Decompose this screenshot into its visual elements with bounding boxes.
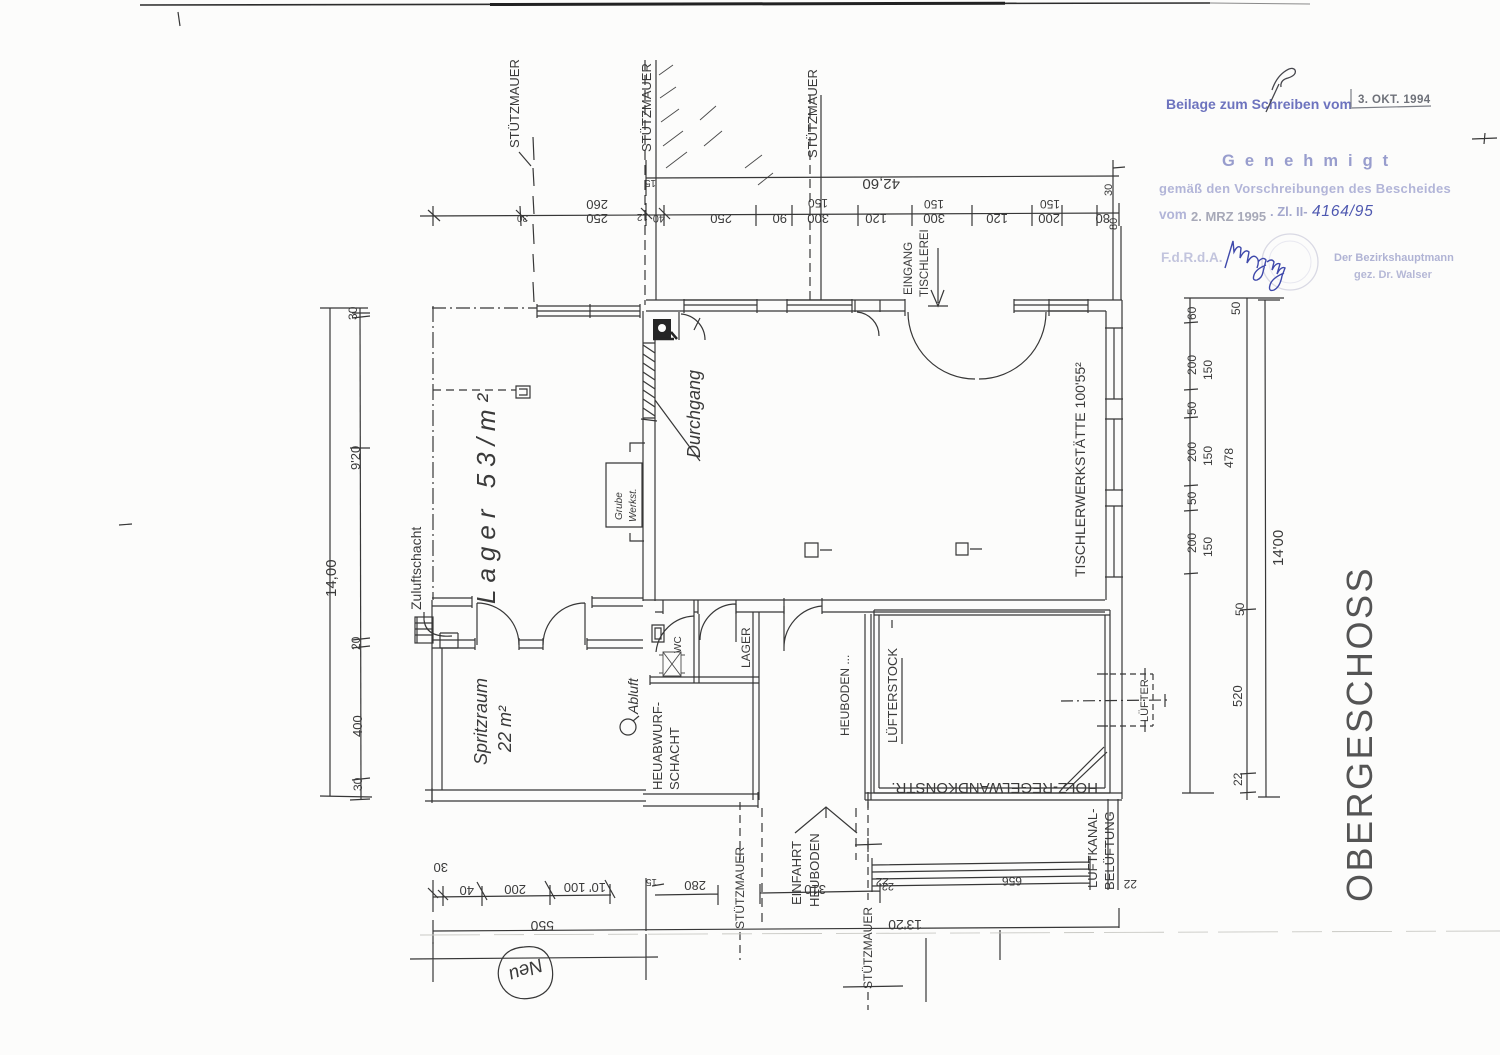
svg-text:200: 200 — [1038, 211, 1060, 226]
svg-text:LÜFTER: LÜFTER — [1139, 679, 1151, 722]
svg-text:30: 30 — [434, 860, 448, 875]
svg-text:EINFAHRT: EINFAHRT — [789, 841, 804, 905]
svg-text:Der Bezirkshauptmann: Der Bezirkshauptmann — [1334, 252, 1454, 264]
svg-text:280: 280 — [684, 878, 706, 893]
svg-text:BELÜFTUNG: BELÜFTUNG — [1102, 811, 1117, 890]
svg-text:478: 478 — [1222, 448, 1236, 468]
svg-text:Lager 53/m²: Lager 53/m² — [471, 387, 501, 604]
svg-text:150: 150 — [1040, 197, 1060, 211]
svg-text:HEUBODEN ...: HEUBODEN ... — [838, 655, 852, 736]
svg-text:50: 50 — [1185, 401, 1199, 415]
svg-text:LAGER: LAGER — [739, 627, 753, 668]
svg-text:2. MRZ 1995: 2. MRZ 1995 — [1191, 209, 1266, 224]
svg-text:150: 150 — [808, 196, 828, 210]
svg-text:22: 22 — [1231, 772, 1245, 786]
svg-text:Grube: Grube — [614, 492, 625, 520]
svg-text:STÜTZMAUER: STÜTZMAUER — [861, 907, 875, 989]
svg-text:520: 520 — [1230, 685, 1245, 707]
svg-text:15: 15 — [644, 177, 656, 188]
svg-text:Werkst.: Werkst. — [628, 488, 639, 522]
svg-text:22 m²: 22 m² — [495, 705, 515, 753]
svg-text:Beilage zum Schreiben vom: Beilage zum Schreiben vom — [1166, 96, 1352, 112]
svg-text:14,00: 14,00 — [323, 559, 340, 597]
svg-text:10' 100: 10' 100 — [564, 880, 606, 895]
svg-text:550: 550 — [530, 918, 554, 934]
svg-text:120: 120 — [986, 211, 1008, 226]
svg-text:310: 310 — [804, 882, 826, 897]
svg-text:300: 300 — [923, 211, 945, 226]
svg-text:656: 656 — [1002, 874, 1022, 888]
svg-text:HEUABWURF-: HEUABWURF- — [650, 702, 665, 790]
svg-text:50: 50 — [1233, 602, 1247, 616]
svg-text:EINGANG: EINGANG — [903, 242, 915, 295]
svg-text:. Zl. II-: . Zl. II- — [1270, 204, 1308, 219]
svg-text:80: 80 — [1108, 218, 1120, 230]
svg-text:50: 50 — [1185, 491, 1199, 505]
svg-text:30: 30 — [1103, 184, 1115, 196]
svg-text:12: 12 — [636, 211, 648, 222]
svg-text:SCHACHT: SCHACHT — [667, 727, 682, 790]
svg-text:150: 150 — [1201, 446, 1215, 466]
svg-text:200: 200 — [1185, 355, 1199, 375]
svg-text:250: 250 — [710, 211, 732, 226]
svg-text:260: 260 — [586, 197, 608, 212]
svg-text:150: 150 — [1201, 360, 1215, 380]
svg-text:OBERGESCHOSS: OBERGESCHOSS — [1339, 566, 1380, 902]
svg-text:HOLZ-REGELWANDKONSTR.: HOLZ-REGELWANDKONSTR. — [891, 779, 1098, 796]
svg-text:Spritzraum: Spritzraum — [471, 678, 491, 765]
svg-text:120: 120 — [865, 211, 887, 226]
svg-text:4164/95: 4164/95 — [1312, 203, 1374, 220]
svg-text:14'00: 14'00 — [1270, 530, 1287, 566]
svg-text:150: 150 — [1201, 537, 1215, 557]
svg-text:90: 90 — [773, 211, 787, 226]
svg-text:22: 22 — [882, 880, 894, 892]
svg-text:30: 30 — [351, 777, 365, 791]
svg-text:40: 40 — [653, 212, 665, 224]
svg-text:STÜTZMAUER: STÜTZMAUER — [507, 59, 522, 148]
svg-text:150: 150 — [924, 197, 944, 211]
svg-text:Genehmigt: Genehmigt — [1222, 152, 1398, 170]
svg-text:WC: WC — [673, 636, 684, 653]
svg-text:42,60: 42,60 — [862, 175, 900, 192]
svg-text:22: 22 — [1123, 877, 1137, 891]
svg-text:Durchgang: Durchgang — [684, 370, 704, 458]
svg-text:60: 60 — [1185, 306, 1199, 320]
svg-text:200: 200 — [1185, 442, 1199, 462]
svg-text:gez. Dr. Walser: gez. Dr. Walser — [1354, 269, 1433, 281]
svg-text:LÜFTERSTOCK: LÜFTERSTOCK — [885, 648, 900, 743]
svg-text:20: 20 — [349, 636, 363, 650]
svg-text:STÜTZMAUER: STÜTZMAUER — [805, 69, 820, 158]
svg-text:LUFTKANAL-: LUFTKANAL- — [1085, 809, 1100, 888]
svg-text:250: 250 — [586, 211, 608, 226]
svg-text:30: 30 — [516, 212, 528, 223]
svg-text:30: 30 — [346, 306, 360, 320]
svg-text:F.d.R.d.A.: F.d.R.d.A. — [1161, 250, 1223, 265]
svg-text:9'20: 9'20 — [348, 446, 363, 470]
svg-text:50: 50 — [1229, 301, 1243, 315]
svg-text:40: 40 — [460, 883, 474, 898]
svg-text:TISCHLERWERKSTÄTTE 100'55²: TISCHLERWERKSTÄTTE 100'55² — [1072, 362, 1088, 577]
svg-text:300: 300 — [807, 211, 829, 226]
svg-text:gemäß den Vorschreibungen des: gemäß den Vorschreibungen des Bescheides — [1159, 181, 1451, 196]
svg-text:13'20: 13'20 — [888, 917, 922, 933]
svg-text:3. OKT. 1994: 3. OKT. 1994 — [1358, 94, 1431, 106]
svg-text:200: 200 — [1185, 533, 1199, 553]
svg-text:Zuluftschacht: Zuluftschacht — [408, 527, 424, 610]
svg-text:TISCHLEREI: TISCHLEREI — [919, 229, 931, 297]
svg-text:Abluft: Abluft — [625, 677, 641, 715]
svg-text:200: 200 — [504, 882, 526, 897]
svg-text:400: 400 — [350, 715, 365, 737]
svg-text:vom: vom — [1159, 207, 1187, 222]
svg-text:STÜTZMAUER: STÜTZMAUER — [639, 63, 654, 152]
